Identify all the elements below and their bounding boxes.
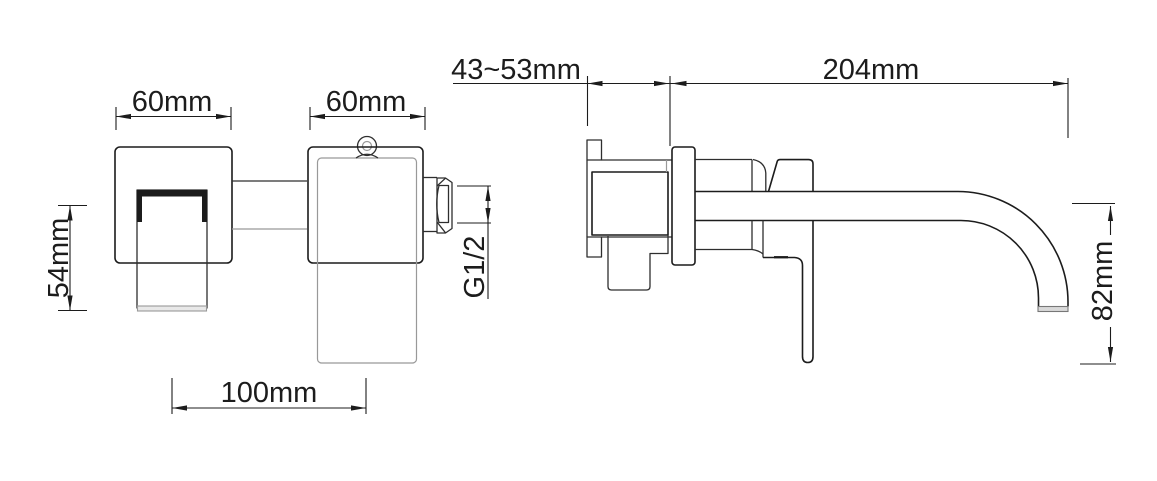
dimension-plate-right-width: 60mm [310, 86, 425, 130]
dimension-wall-depth: 43~53mm [451, 54, 670, 146]
arrowhead [588, 81, 603, 86]
valve-body-lower [608, 235, 668, 290]
dimension-inlet-thread: G1/2 [457, 186, 491, 299]
wall-plate-side [587, 140, 602, 257]
arrowhead [1108, 347, 1113, 362]
arrowhead [172, 405, 187, 410]
handle-top-edge [137, 190, 207, 197]
arrowhead [654, 81, 669, 86]
body-connector [232, 181, 307, 229]
set-screw-circle [358, 137, 377, 156]
dimension-label: 54mm [43, 218, 75, 299]
valve-body-side [592, 172, 668, 235]
arrowhead [485, 208, 490, 223]
dimension-plate-spacing: 100mm [172, 377, 366, 414]
dimension-spout-height: 82mm [1072, 204, 1119, 365]
mixer-body-front [318, 158, 417, 363]
dimension-label: 60mm [326, 86, 407, 118]
arrowhead [485, 186, 490, 201]
handle-bottom-face [138, 306, 207, 311]
dimension-label: 204mm [823, 54, 920, 86]
dimension-label: G1/2 [459, 236, 491, 299]
arrowhead [1053, 81, 1068, 86]
handle-right-edge [202, 190, 207, 222]
arrowhead [672, 81, 687, 86]
arrowhead [310, 114, 325, 119]
trim-plate-side [672, 147, 695, 265]
arrowhead [410, 114, 425, 119]
arrowhead [216, 114, 231, 119]
cartridge-cover [695, 160, 766, 192]
dimension-label: 82mm [1087, 241, 1119, 322]
side-view: 43~53mm 204mm 82mm [451, 54, 1119, 364]
handle-lever-side [763, 221, 813, 363]
mounting-plate-right [308, 147, 423, 263]
dimension-label: 43~53mm [451, 54, 581, 86]
handle-front [137, 190, 207, 311]
mounting-plate-left [115, 147, 232, 263]
dimension-spout-reach: 204mm [670, 54, 1068, 138]
inlet-fitting [423, 178, 452, 234]
arrowhead [351, 405, 366, 410]
lever-cap [769, 160, 814, 192]
dimension-handle-height: 54mm [43, 206, 87, 311]
handle-left-edge [137, 190, 142, 222]
dimension-plate-left-width: 60mm [116, 86, 231, 130]
dimension-label: 100mm [221, 377, 318, 409]
faucet-technical-drawing: 60mm 60mm 54mm 100mm [0, 0, 1157, 481]
arrowhead [116, 114, 131, 119]
spout-outlet [1038, 307, 1068, 312]
front-view: 60mm 60mm 54mm 100mm [43, 86, 491, 414]
dimension-label: 60mm [132, 86, 213, 118]
spout [695, 192, 1068, 312]
spout-base-housing [695, 221, 788, 258]
arrowhead [1108, 206, 1113, 221]
